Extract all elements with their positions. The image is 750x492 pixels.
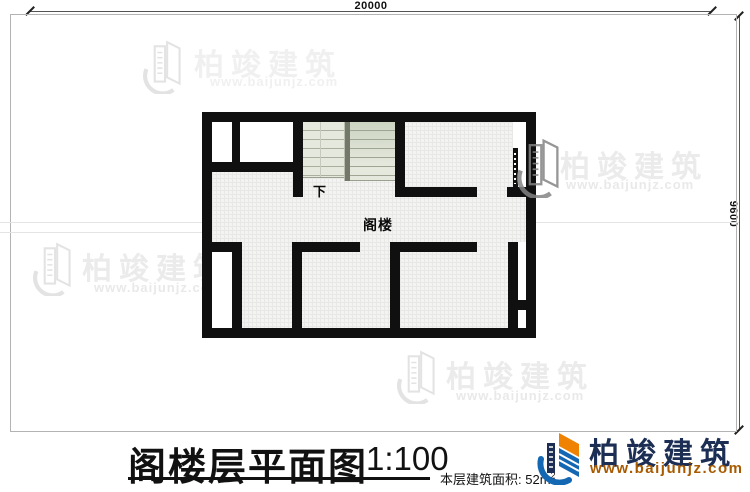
small-room-right (240, 122, 293, 162)
wall-small-room-divider (232, 122, 240, 162)
wall-outer-left (202, 112, 212, 338)
guide-line-left (0, 232, 202, 233)
title-underline (128, 477, 430, 480)
attic-room-label: 阁楼 (352, 215, 404, 235)
stair-flight-right (350, 122, 395, 181)
floor-area-label: 本层建筑面积: (440, 472, 522, 487)
drawing-sheet: 20000 9600 柏竣建筑 www.baijunjz.com 柏竣建筑 ww… (0, 0, 750, 492)
stair-handrail-line (320, 122, 321, 177)
wall-closet-right (232, 242, 242, 338)
watermark-logo-icon-dark (516, 136, 562, 198)
small-room-left (212, 122, 232, 162)
watermark-logo-icon (30, 240, 76, 296)
sheet-scale: 1:100 (366, 440, 449, 478)
top-dimension-label: 20000 (340, 0, 402, 12)
company-logo-url: www.baijunjz.com (590, 460, 743, 477)
wall-shaft-connector (518, 300, 526, 310)
wall-lower-segment-b (292, 242, 360, 252)
wall-outer-top (202, 112, 536, 122)
stair-flight-left (302, 122, 344, 178)
wall-lower-vertical-2 (390, 242, 400, 338)
watermark-url-text: www.baijunjz.com (210, 74, 338, 89)
sheet-title: 阁楼层平面图 (128, 436, 368, 491)
wall-lower-segment-c (390, 242, 477, 252)
watermark-logo-icon (394, 348, 440, 404)
watermark-logo-icon (140, 38, 186, 94)
right-shaft-upper (518, 242, 526, 300)
watermark-url-text: www.baijunjz.com (456, 388, 584, 403)
left-closet-void (212, 252, 232, 328)
wall-outer-bottom (202, 328, 536, 338)
right-dimension-line (739, 16, 740, 430)
wall-inner-right (508, 242, 518, 338)
stair-direction-label: 下 (313, 181, 327, 200)
staircase (302, 122, 395, 181)
wall-lower-vertical-1 (292, 242, 302, 338)
wall-topright-room-bottom (395, 187, 477, 197)
company-logo-icon (533, 431, 587, 485)
wall-stair-left (293, 122, 303, 197)
wall-under-small-rooms (202, 162, 303, 172)
right-shaft-lower (518, 310, 526, 328)
wall-stair-right (395, 122, 405, 197)
watermark-url-text: www.baijunjz.com (566, 177, 694, 192)
